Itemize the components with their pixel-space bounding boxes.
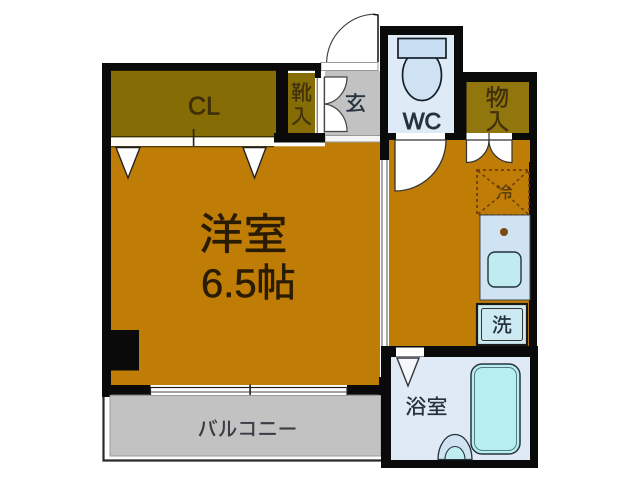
svg-text:WC: WC [403, 108, 441, 134]
svg-text:CL: CL [188, 93, 220, 121]
svg-text:6.5: 6.5 [201, 262, 257, 306]
